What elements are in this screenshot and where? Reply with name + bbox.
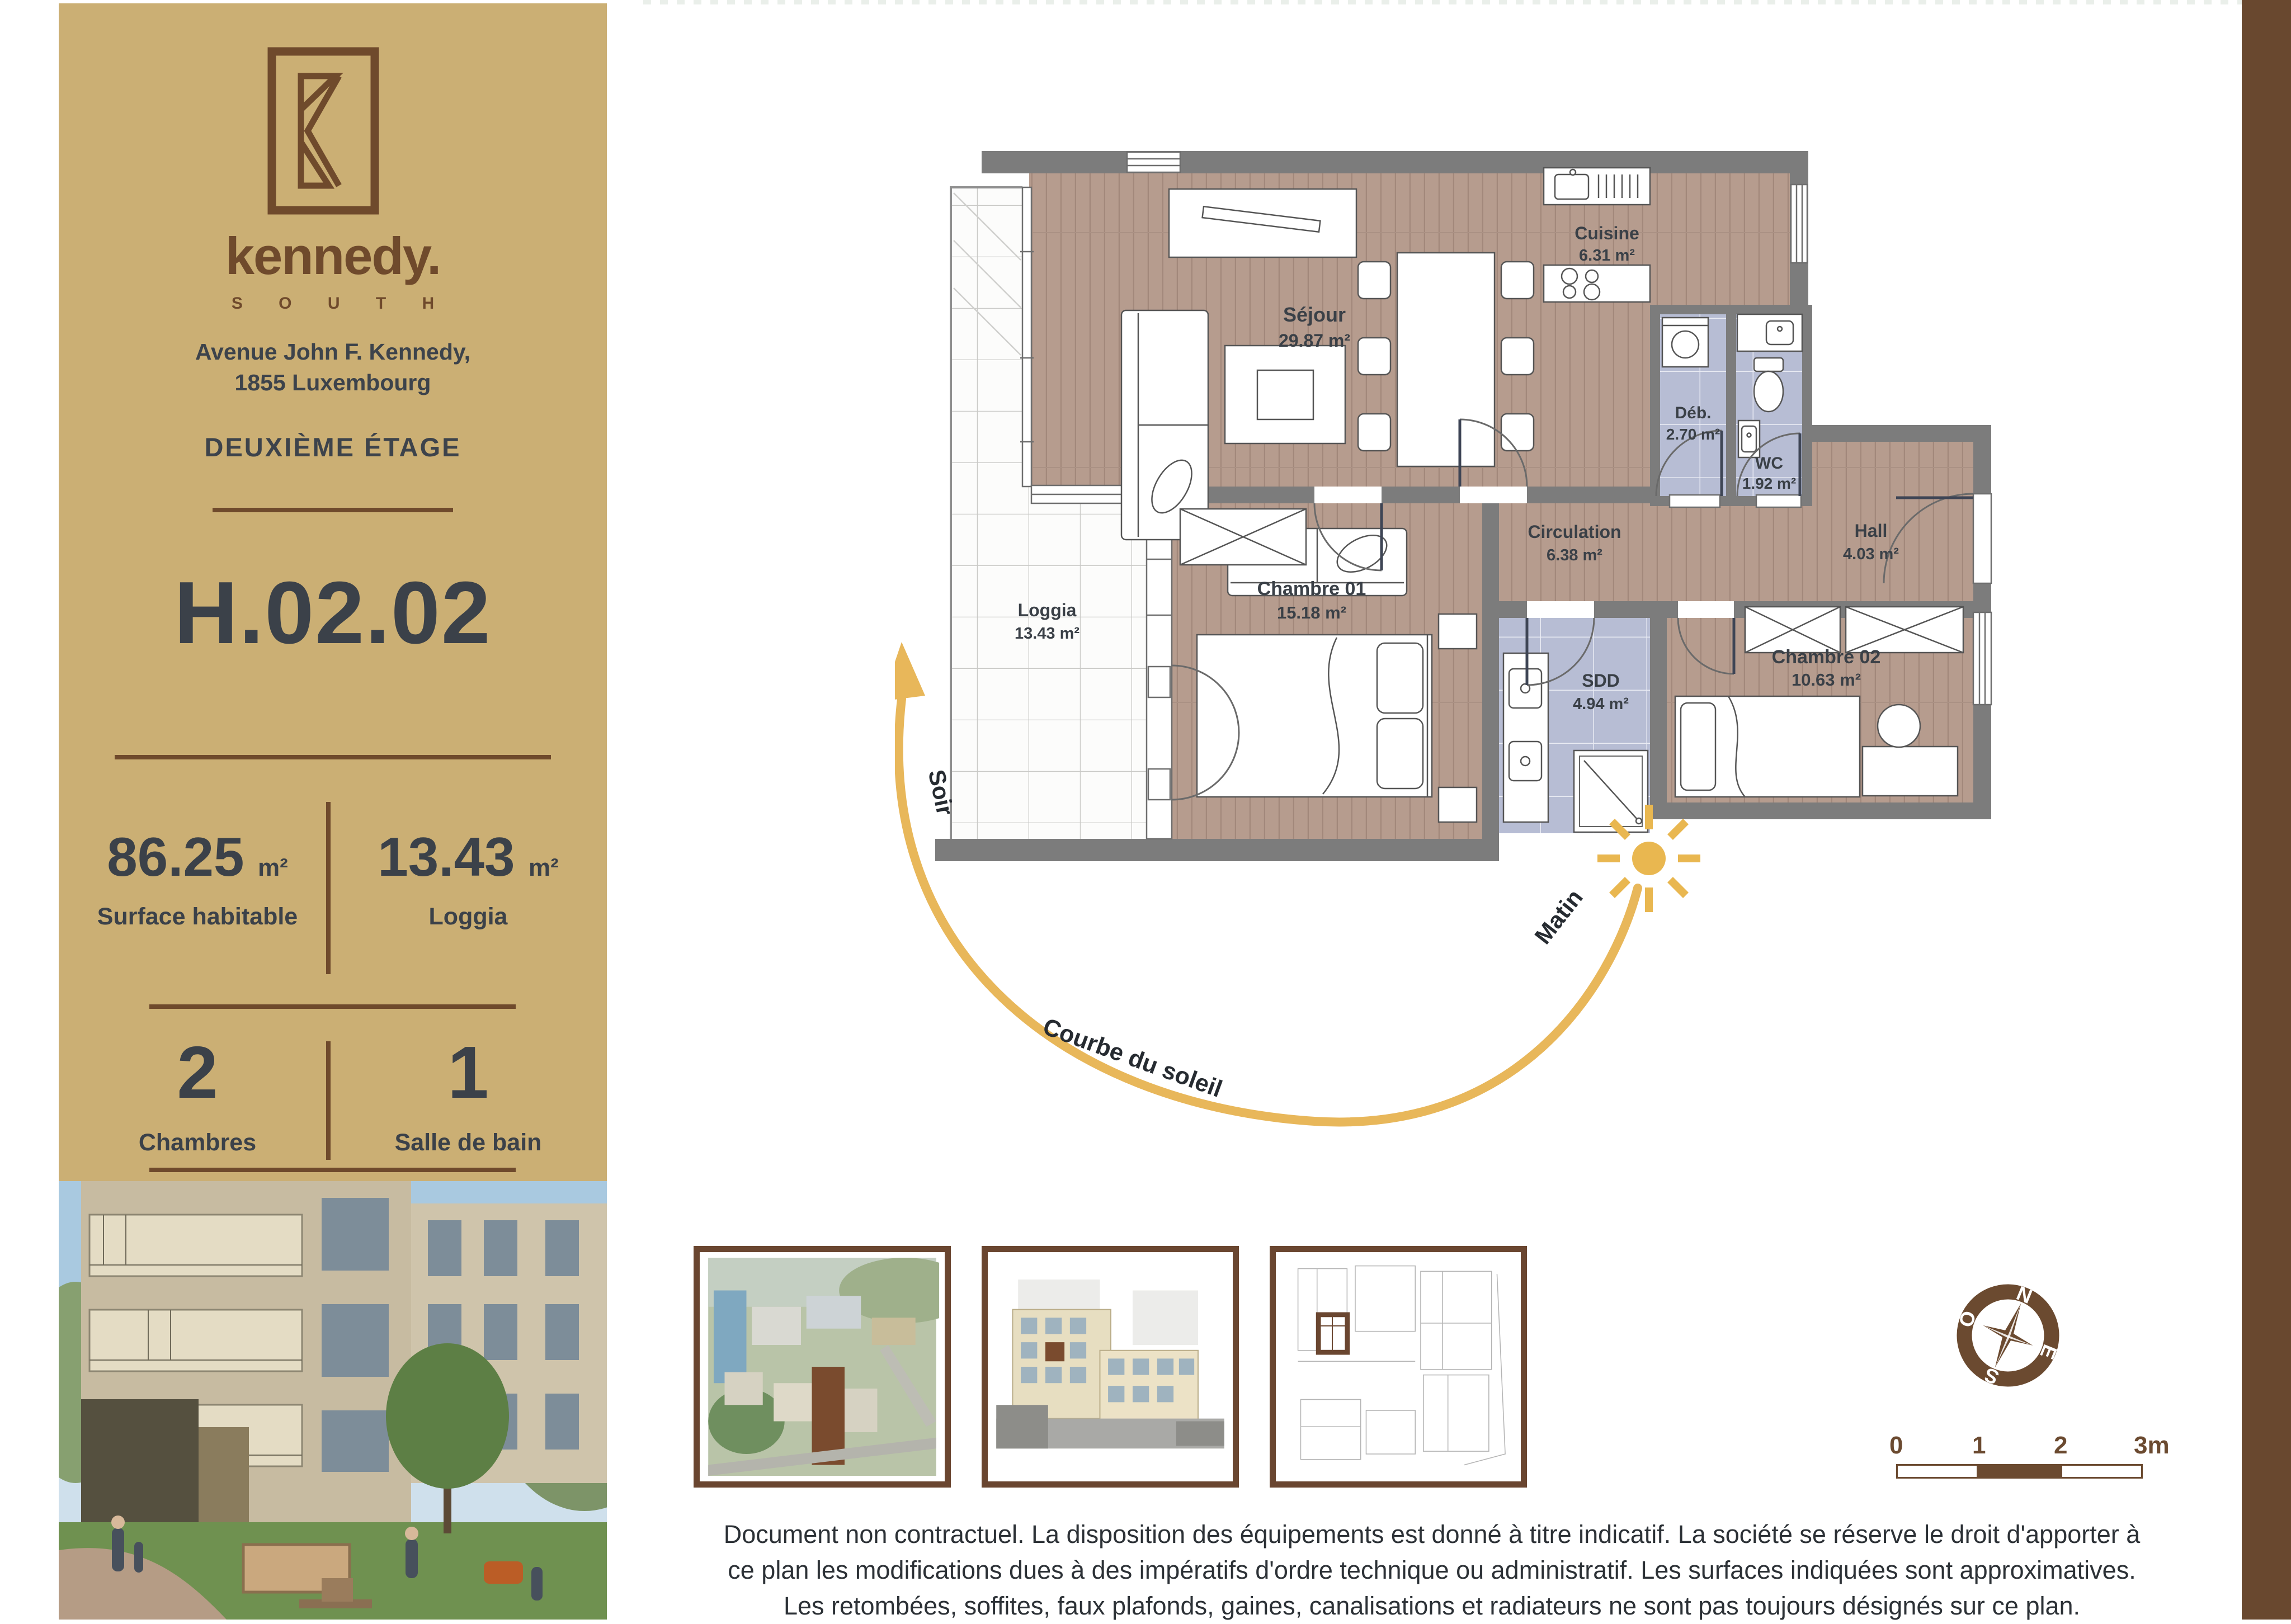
brand-subtitle: S O U T H [59, 294, 607, 313]
brand-name: kennedy. [59, 226, 607, 286]
right-brown-stripe [2242, 0, 2291, 1620]
room-label: Déb. [1675, 404, 1711, 422]
sun-curve-label: Courbe du soleil [1039, 1013, 1225, 1103]
floor-overview-art [1281, 1258, 1515, 1476]
room-area: 6.31 m² [1579, 247, 1635, 265]
room-area: 15.18 m² [1277, 603, 1346, 622]
room-area: 4.94 m² [1573, 695, 1629, 713]
separator [326, 802, 331, 974]
sun-icon [1597, 805, 1700, 912]
divider [213, 508, 453, 512]
loggia-value: 13.43 [378, 825, 515, 889]
room-label: Loggia [1018, 600, 1077, 620]
loggia-label: Loggia [340, 903, 597, 931]
room-label: Chambre 02 [1772, 646, 1881, 668]
divider [149, 1168, 516, 1172]
room-area: 2.70 m² [1666, 426, 1720, 443]
room-label: SDD [1582, 671, 1620, 691]
surface-value: 86.25 [107, 825, 244, 889]
room-area: 10.63 m² [1792, 670, 1861, 690]
elevation-art [993, 1258, 1227, 1476]
room-area: 6.38 m² [1547, 546, 1602, 564]
sun-morning-label: Matin [1529, 884, 1588, 948]
building-photo [59, 1181, 607, 1620]
separator [326, 1041, 331, 1160]
disclaimer-text: Document non contractuel. La disposition… [716, 1517, 2148, 1624]
scale-tick: 3m [2134, 1432, 2170, 1460]
stat-surface: 86.25 m² Surface habitable [69, 825, 326, 931]
bathrooms-label: Salle de bain [340, 1129, 597, 1156]
scale-segment [2061, 1464, 2143, 1479]
room-area: 1.92 m² [1742, 475, 1797, 492]
room-area: 13.43 m² [1015, 625, 1079, 643]
unit-code: H.02.02 [59, 563, 607, 664]
bedrooms-value: 2 [69, 1030, 326, 1115]
loggia-unit: m² [529, 854, 559, 882]
scale-segment [1978, 1464, 2061, 1479]
divider [149, 1004, 516, 1009]
floor-label: DEUXIÈME ÉTAGE [59, 432, 607, 462]
room-label: WC [1755, 454, 1783, 473]
compass-rose: N E S O [1952, 1280, 2064, 1391]
sun-curve-arrow [895, 642, 925, 701]
scale-tick: 2 [2054, 1432, 2067, 1460]
scale-tick: 0 [1889, 1432, 1903, 1460]
count-bathrooms: 1 Salle de bain [340, 1030, 597, 1156]
sidebar: kennedy. S O U T H Avenue John F. Kenned… [59, 3, 607, 1181]
room-label: Chambre 01 [1257, 578, 1366, 599]
thumbnail-elevation [982, 1246, 1239, 1488]
top-edge-texture [643, 0, 2242, 4]
scale-segment [1896, 1464, 1978, 1479]
stat-loggia: 13.43 m² Loggia [340, 825, 597, 931]
divider [115, 755, 551, 759]
scale-tick: 1 [1972, 1432, 1986, 1460]
bedrooms-label: Chambres [69, 1129, 326, 1156]
scale-bar: 0 1 2 3m [1885, 1432, 2165, 1488]
bathrooms-value: 1 [340, 1030, 597, 1115]
thumbnail-floor-overview [1270, 1246, 1527, 1488]
kennedy-logo-icon [267, 47, 379, 215]
room-label: Cuisine [1575, 223, 1639, 243]
address-line2: 1855 Luxembourg [59, 367, 607, 398]
room-area: 4.03 m² [1843, 545, 1899, 563]
thumbnail-aerial-view [694, 1246, 951, 1488]
address-line1: Avenue John F. Kennedy, [59, 337, 607, 367]
room-area: 29.87 m² [1279, 331, 1350, 351]
address: Avenue John F. Kennedy, 1855 Luxembourg [59, 337, 607, 399]
surface-unit: m² [258, 854, 288, 882]
surface-label: Surface habitable [69, 903, 326, 931]
count-bedrooms: 2 Chambres [69, 1030, 326, 1156]
room-label: Séjour [1283, 303, 1346, 326]
room-label: Hall [1855, 521, 1888, 541]
room-label: Circulation [1528, 522, 1621, 542]
floor-plan: Séjour 29.87 m² Cuisine 6.31 m² Déb. 2.7… [895, 129, 2070, 1146]
aerial-art [705, 1258, 939, 1476]
